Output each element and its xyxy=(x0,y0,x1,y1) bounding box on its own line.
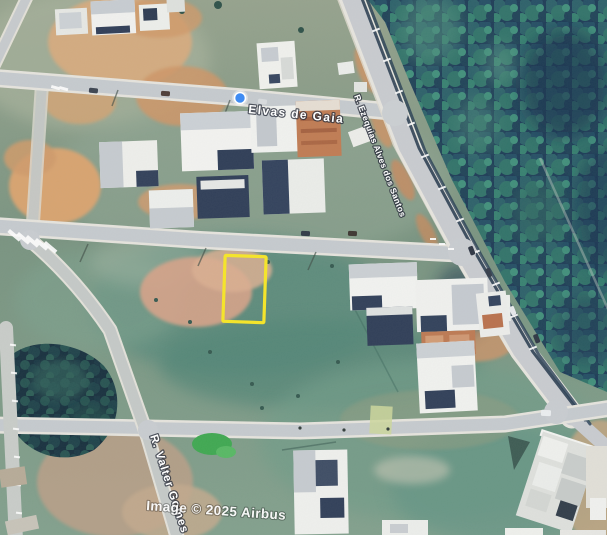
poi-marker-icon[interactable] xyxy=(232,90,248,106)
satellite-map-viewport[interactable]: Elvas de Gaia R. Ezequias Alves dos Sant… xyxy=(0,0,607,535)
map-canvas: Elvas de Gaia R. Ezequias Alves dos Sant… xyxy=(0,0,607,535)
imagery-grain xyxy=(0,0,607,535)
